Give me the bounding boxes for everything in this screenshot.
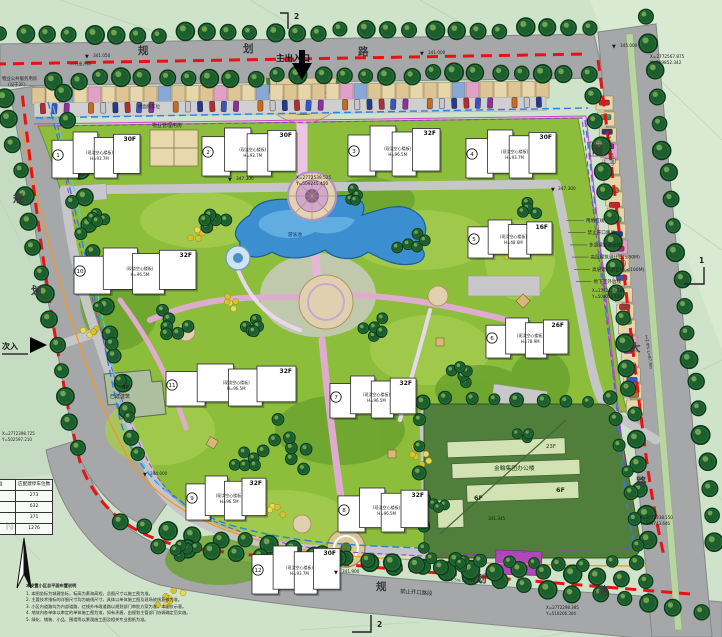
- shop-block: [382, 83, 395, 100]
- tree-icon: [489, 394, 500, 405]
- setback-label: 高层建筑退让线(≤100M): [592, 266, 645, 273]
- shop-block: [312, 84, 325, 101]
- tree-icon: [474, 554, 487, 567]
- tree-icon: [170, 545, 181, 556]
- tree-icon: [622, 466, 633, 477]
- car-icon: [185, 102, 190, 113]
- shop-block: [116, 86, 129, 103]
- building-floors: 30F: [280, 132, 292, 139]
- parking-table-header: 应配建停车位数: [16, 480, 53, 491]
- tree-icon: [531, 208, 542, 219]
- tree-icon: [359, 69, 373, 83]
- pool-label: 游泳池: [288, 231, 302, 238]
- shop-block: [158, 86, 171, 103]
- tree-icon: [200, 70, 218, 88]
- building-floors: 30F: [540, 134, 552, 141]
- car-icon: [619, 304, 630, 309]
- tree-icon: [486, 564, 503, 581]
- tree-icon: [577, 559, 589, 571]
- tree-icon: [455, 362, 466, 373]
- tree-icon: [510, 393, 524, 407]
- building-number: 1: [56, 153, 60, 159]
- office-f1-label: 6F: [556, 486, 565, 494]
- shop-block: [354, 83, 367, 100]
- building-height: H=96.5M: [227, 386, 246, 391]
- tree-icon: [93, 70, 108, 85]
- building-number: 7: [334, 395, 338, 401]
- car-icon: [294, 100, 300, 111]
- tree-icon: [199, 214, 211, 226]
- road-name-char: 大: [630, 341, 641, 354]
- shop-block: [396, 83, 409, 100]
- tree-icon: [680, 326, 694, 340]
- shrub-icon: [274, 504, 280, 510]
- building-note: (现浇空心楼板): [384, 145, 412, 151]
- building-note: (现浇空心楼板): [216, 492, 244, 498]
- car-icon: [512, 97, 517, 108]
- tree-icon: [298, 463, 310, 475]
- tree-icon: [75, 228, 87, 240]
- tree-icon: [616, 311, 630, 325]
- tree-icon: [603, 391, 617, 405]
- office-name-label: 金輪集团办公楼: [494, 464, 535, 472]
- tree-icon: [106, 337, 119, 350]
- road-name-char: 路: [636, 475, 647, 488]
- building-floors: 30F: [324, 550, 336, 557]
- tree-icon: [238, 533, 252, 547]
- shrub-icon: [188, 235, 194, 241]
- car-icon: [258, 101, 263, 112]
- tree-icon: [512, 429, 522, 439]
- shop-block: [130, 86, 143, 103]
- shop-block: [508, 81, 521, 98]
- tree-icon: [639, 34, 657, 52]
- tree-icon: [41, 311, 57, 327]
- parking-count-cell: 273: [16, 491, 53, 502]
- shrub-icon: [231, 306, 237, 312]
- shop-block: [88, 87, 101, 104]
- tree-icon: [666, 219, 680, 233]
- tree-icon: [71, 74, 87, 90]
- car-icon: [209, 101, 215, 112]
- tree-icon: [583, 397, 594, 408]
- annotation-text: ▼: [143, 472, 147, 478]
- table-row: 632: [0, 502, 53, 513]
- tree-icon: [529, 558, 540, 569]
- tree-icon: [426, 21, 444, 39]
- building-note: (现浇空心楼板): [286, 564, 314, 570]
- tree-icon: [515, 66, 529, 80]
- tree-icon: [130, 28, 146, 44]
- secondary-entrance-label: 次入: [2, 341, 18, 351]
- tree-icon: [595, 163, 612, 180]
- annotation-text: X=2772567.875: [650, 54, 685, 59]
- tree-icon: [561, 20, 576, 35]
- car-icon: [282, 100, 288, 111]
- building-height: H=96.5M: [131, 272, 150, 277]
- tree-icon: [92, 216, 103, 227]
- tree-icon: [419, 235, 430, 246]
- car-icon: [40, 103, 46, 114]
- tree-icon: [316, 67, 332, 83]
- building-height: H=48.6M: [504, 240, 523, 245]
- car-icon: [233, 101, 239, 112]
- tree-icon: [107, 349, 121, 363]
- tree-icon: [466, 64, 483, 81]
- car-icon: [367, 99, 373, 110]
- notes-title: 本安置小区总平面布置说明: [26, 583, 361, 590]
- building-note: (现浇空心楼板): [500, 233, 528, 239]
- car-icon: [451, 98, 457, 109]
- building-note: (现浇空心楼板): [239, 146, 267, 152]
- parking-count-cell: 371: [16, 513, 53, 524]
- tree-icon: [61, 27, 76, 42]
- building-note: (现浇空心楼板): [86, 149, 114, 155]
- tree-icon: [198, 23, 215, 40]
- tree-icon: [426, 553, 437, 564]
- tree-icon: [597, 184, 613, 200]
- building-height: H=93.7M: [505, 155, 524, 160]
- annotation-text: 347.300: [236, 176, 254, 182]
- parking-table: 标准应配建停车位数2736323711276: [0, 479, 53, 535]
- tree-icon: [524, 429, 534, 439]
- tree-icon: [39, 26, 55, 42]
- tree-icon: [404, 69, 420, 85]
- building-height: H=93.7M: [243, 153, 262, 158]
- annotation-text: 347.300: [558, 186, 576, 192]
- tree-icon: [618, 360, 634, 376]
- car-icon: [343, 100, 348, 111]
- shrub-icon: [194, 227, 200, 233]
- building-floors: 30F: [124, 136, 136, 143]
- building-height: H=96.5M: [220, 499, 239, 504]
- car-icon: [173, 102, 178, 113]
- tree-icon: [534, 65, 552, 83]
- property-service-label: 物业公共服务用房: [2, 75, 38, 82]
- building-floors: 32F: [280, 368, 292, 375]
- tree-icon: [172, 327, 184, 339]
- setback-label: 多层建筑退让线: [589, 241, 622, 248]
- car-icon: [88, 103, 93, 114]
- tree-icon: [694, 605, 709, 620]
- tree-icon: [466, 392, 478, 404]
- building-floors: 26F: [552, 322, 564, 329]
- tree-icon: [402, 23, 417, 38]
- shrub-icon: [195, 235, 201, 241]
- section-mark-top: 2: [294, 12, 299, 21]
- tree-icon: [284, 432, 296, 444]
- tree-icon: [112, 68, 130, 86]
- annotation-text: ▼: [85, 54, 89, 60]
- note-item: 5. 绿化、铺装、小品、围墙等以景观施工图及相关专业图纸为准。: [26, 617, 361, 624]
- tree-icon: [131, 447, 144, 460]
- tree-icon: [269, 434, 281, 446]
- plan-notes: 本安置小区总平面布置说明 1. 本图坐标为城建坐标，标高为黄海高程，总图尺寸以施…: [26, 583, 361, 623]
- car-icon: [464, 98, 470, 109]
- building-note: (现浇空心楼板): [363, 391, 391, 397]
- annotation-text: 345.000: [620, 43, 638, 48]
- shop-block: [452, 82, 465, 99]
- road-name-char: 规: [138, 44, 149, 57]
- tree-icon: [286, 442, 298, 454]
- tree-icon: [537, 394, 550, 407]
- annotation-text: X=2772238.150: [640, 515, 673, 520]
- road-name-char: 划: [31, 284, 42, 297]
- tree-icon: [504, 556, 516, 568]
- tree-icon: [220, 24, 235, 39]
- tree-icon: [699, 453, 716, 470]
- annotation-text: Y=509245.450: [295, 181, 328, 187]
- building-note: (现浇空心楼板): [223, 379, 251, 385]
- car-icon: [101, 103, 106, 114]
- tree-icon: [618, 591, 632, 605]
- shrub-icon: [280, 512, 286, 518]
- shop-block: [242, 85, 255, 102]
- tree-icon: [691, 401, 706, 416]
- shrub-icon: [80, 327, 86, 333]
- car-icon: [427, 98, 432, 109]
- building-number: 3: [352, 149, 356, 155]
- tree-icon: [517, 18, 535, 36]
- tree-icon: [680, 351, 697, 368]
- shop-block: [326, 84, 339, 101]
- annotation-text: 341.000: [428, 50, 446, 55]
- building-note: (现浇空心楼板): [126, 265, 154, 271]
- tree-icon: [25, 240, 40, 255]
- tree-icon: [203, 543, 220, 560]
- road-name-char: 划: [243, 42, 254, 55]
- car-icon: [197, 101, 203, 112]
- tree-icon: [392, 242, 403, 253]
- tree-icon: [358, 21, 375, 38]
- tree-icon: [539, 581, 557, 599]
- shop-block: [102, 87, 115, 104]
- shop-block: [144, 86, 157, 103]
- tree-icon: [583, 21, 597, 35]
- tree-icon: [377, 313, 388, 324]
- building-number: 2: [206, 150, 210, 156]
- tree-icon: [560, 395, 572, 407]
- car-icon: [125, 102, 131, 113]
- annotation-text: ▼: [228, 177, 232, 183]
- tree-icon: [677, 299, 692, 314]
- tree-icon: [272, 414, 284, 426]
- shop-block: [522, 81, 535, 98]
- tree-icon: [242, 25, 256, 39]
- tree-icon: [456, 558, 466, 568]
- tree-icon: [609, 412, 622, 425]
- building-number: 4: [470, 152, 474, 158]
- car-icon: [318, 100, 324, 111]
- annotation-text: ▼: [612, 44, 616, 50]
- property-service-label-2: (设于2F): [8, 81, 26, 88]
- tree-icon: [653, 142, 671, 160]
- tree-icon: [445, 63, 463, 81]
- tree-icon: [604, 210, 618, 224]
- property-mgmt-label: 物业管理用房: [152, 122, 182, 129]
- road-name-char: 规: [13, 192, 24, 205]
- tree-icon: [228, 546, 243, 561]
- small-plaza: [428, 286, 448, 306]
- shop-block: [438, 82, 451, 99]
- annotation-text: X=2772539.525: [296, 175, 332, 181]
- tree-icon: [55, 84, 72, 101]
- tree-icon: [160, 70, 176, 86]
- setback-label: 地下室外边线: [594, 278, 622, 285]
- building-height: H=96.5M: [388, 152, 407, 157]
- tree-icon: [4, 137, 20, 153]
- small-plaza: [293, 515, 311, 533]
- tree-icon: [376, 326, 387, 337]
- annotation-text: 341.050: [93, 53, 111, 58]
- tree-icon: [300, 443, 312, 455]
- annotation-text: X=2772454.186: [592, 288, 625, 293]
- annotation-text: ▼: [420, 51, 424, 57]
- tree-icon: [267, 24, 285, 42]
- tree-icon: [412, 466, 426, 480]
- tree-icon: [161, 328, 173, 340]
- shrub-icon: [233, 298, 239, 304]
- tree-icon: [133, 69, 150, 86]
- building-floors: 32F: [250, 480, 262, 487]
- table-row: 1276: [0, 524, 53, 535]
- shop-block: [480, 82, 493, 99]
- shrub-icon: [90, 329, 96, 335]
- parking-count-cell: 632: [16, 502, 53, 513]
- tree-icon: [0, 110, 17, 127]
- shrub-icon: [423, 451, 429, 457]
- tree-icon: [667, 244, 685, 262]
- tree-icon: [34, 266, 48, 280]
- tree-icon: [159, 522, 177, 540]
- building-floors: 32F: [412, 492, 424, 499]
- building-floors: 32F: [180, 252, 192, 259]
- tree-icon: [86, 26, 104, 44]
- annotation-text: X=2772398.725: [2, 431, 35, 436]
- tree-icon: [665, 600, 681, 616]
- annotation-text: Y=509852.342: [649, 60, 682, 65]
- building-height: H=93.7M: [90, 156, 109, 161]
- tree-icon: [688, 373, 704, 389]
- tree-icon: [663, 191, 678, 206]
- setback-label: 用地红线: [586, 217, 605, 224]
- tree-icon: [333, 22, 347, 36]
- annotation-text: Y=510206.304: [545, 611, 576, 616]
- car-icon: [439, 98, 444, 109]
- road-name-char: 路: [358, 45, 369, 58]
- office-tower-label: 23F: [546, 444, 556, 450]
- tree-icon: [650, 89, 666, 105]
- tree-icon: [248, 326, 259, 337]
- tree-icon: [182, 321, 194, 333]
- tree-icon: [628, 431, 645, 448]
- tree-icon: [621, 381, 636, 396]
- master-plan-drawing: 130F(现浇空心楼板)H=93.7M230F(现浇空心楼板)H=93.7M33…: [0, 0, 722, 637]
- tree-icon: [517, 578, 531, 592]
- building-number: 9: [190, 496, 194, 502]
- building-height: H=96.5M: [377, 511, 396, 516]
- tree-icon: [614, 571, 629, 586]
- annotation-text: Y=509054.130: [591, 294, 622, 299]
- tree-icon: [248, 72, 263, 87]
- car-icon: [524, 97, 529, 108]
- tree-icon: [289, 25, 305, 41]
- shrub-icon: [426, 458, 432, 464]
- tree-icon: [640, 594, 658, 612]
- shop-block: [424, 82, 437, 99]
- shop-block: [284, 84, 297, 101]
- car-icon: [390, 99, 396, 110]
- tree-icon: [176, 22, 194, 40]
- shop-block: [32, 88, 45, 105]
- annotation-text: 341.345: [488, 516, 506, 521]
- tree-icon: [57, 388, 74, 405]
- tree-icon: [661, 164, 678, 181]
- tree-icon: [606, 556, 618, 568]
- shop-block: [340, 84, 353, 101]
- tree-icon: [632, 539, 644, 551]
- tree-icon: [55, 364, 69, 378]
- car-icon: [221, 101, 227, 112]
- tree-icon: [93, 302, 103, 312]
- shop-block: [368, 83, 381, 100]
- shop-block: [270, 84, 283, 101]
- surface-parking-label: 地面停车位: [138, 103, 161, 110]
- building-note: (现浇空心楼板): [517, 332, 545, 338]
- tree-icon: [652, 117, 666, 131]
- building-height: H=93.7M: [290, 571, 309, 576]
- tree-icon: [239, 460, 250, 471]
- tree-icon: [518, 206, 529, 217]
- building-number: 6: [490, 336, 494, 342]
- road-name-char: 路: [598, 584, 609, 597]
- building-number: 11: [168, 383, 176, 389]
- tree-icon: [613, 439, 625, 451]
- annotation-text: 344.000: [150, 471, 168, 476]
- building-floors: 16F: [536, 224, 548, 231]
- building-number: 5: [472, 237, 476, 243]
- tree-icon: [674, 271, 690, 287]
- annotation-text: X=2772298.385: [546, 605, 579, 610]
- tree-icon: [628, 407, 642, 421]
- table-row: 273: [0, 491, 53, 502]
- tree-icon: [50, 338, 65, 353]
- tree-icon: [20, 213, 37, 230]
- shrub-icon: [225, 293, 231, 299]
- tree-icon: [350, 195, 360, 205]
- tree-icon: [384, 554, 401, 571]
- building-height: H=78.9M: [521, 339, 540, 344]
- annotation-text: Y=509743.646: [639, 521, 670, 526]
- road-name-char: 规: [376, 580, 387, 593]
- tree-icon: [552, 557, 566, 571]
- shop-block: [298, 84, 311, 101]
- tree-icon: [493, 65, 509, 81]
- shop-block: [214, 85, 227, 102]
- tree-icon: [151, 539, 165, 553]
- annotation-text: ▼: [334, 570, 338, 576]
- tree-icon: [229, 459, 240, 470]
- car-icon: [536, 97, 542, 108]
- tree-icon: [257, 445, 269, 457]
- tree-icon: [124, 412, 135, 423]
- tree-icon: [358, 323, 369, 334]
- tree-icon: [702, 481, 718, 497]
- section-mark-bottom: 2: [377, 620, 382, 629]
- tree-icon: [705, 533, 722, 551]
- tree-icon: [337, 68, 352, 83]
- car-icon: [306, 100, 312, 111]
